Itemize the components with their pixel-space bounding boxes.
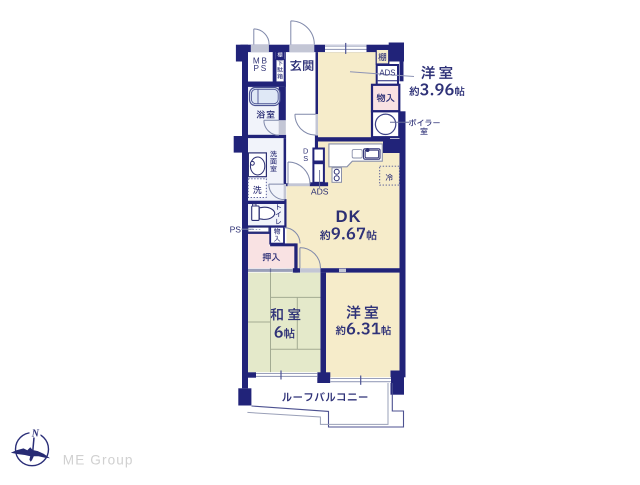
svg-text:PS: PS xyxy=(230,225,242,235)
svg-text:ADS: ADS xyxy=(311,187,329,197)
svg-text:ADS: ADS xyxy=(379,69,395,78)
svg-text:DK: DK xyxy=(336,208,362,226)
svg-text:N: N xyxy=(31,429,40,440)
svg-text:PS: PS xyxy=(254,64,269,73)
svg-text:S: S xyxy=(303,154,308,163)
svg-text:ME Group: ME Group xyxy=(63,453,134,468)
